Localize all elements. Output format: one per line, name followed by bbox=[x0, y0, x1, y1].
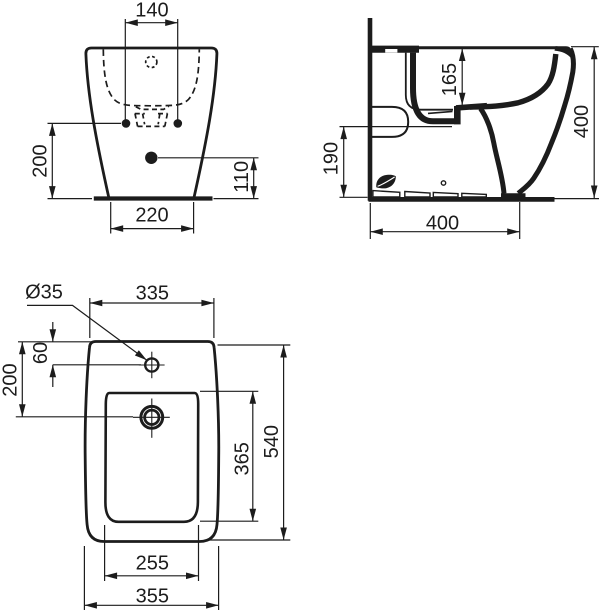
svg-text:400: 400 bbox=[426, 213, 459, 235]
svg-text:200: 200 bbox=[29, 144, 51, 177]
svg-text:200: 200 bbox=[0, 363, 22, 396]
svg-text:335: 335 bbox=[136, 282, 169, 304]
svg-text:165: 165 bbox=[439, 63, 461, 96]
svg-text:60: 60 bbox=[30, 342, 52, 364]
svg-text:Ø35: Ø35 bbox=[25, 281, 63, 303]
svg-text:400: 400 bbox=[571, 105, 593, 138]
svg-text:255: 255 bbox=[136, 553, 169, 575]
svg-text:110: 110 bbox=[231, 161, 253, 193]
svg-text:365: 365 bbox=[231, 442, 253, 475]
svg-text:220: 220 bbox=[135, 204, 168, 226]
svg-text:190: 190 bbox=[320, 142, 342, 175]
svg-text:540: 540 bbox=[261, 425, 283, 458]
svg-text:140: 140 bbox=[135, 0, 168, 21]
svg-text:355: 355 bbox=[136, 585, 169, 607]
